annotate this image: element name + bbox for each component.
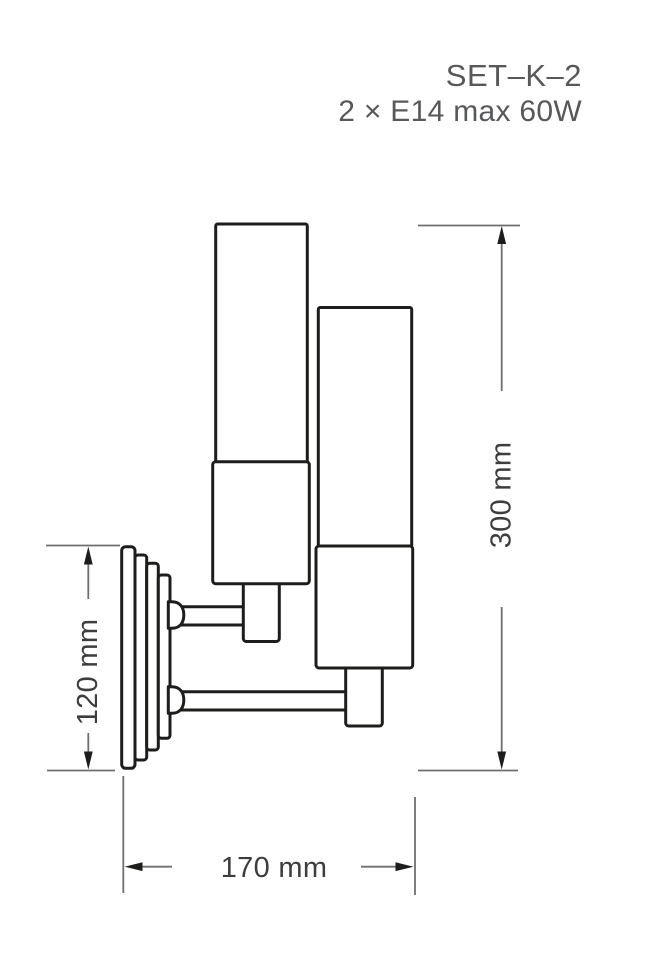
- dim-depth: 170 mm: [123, 776, 415, 895]
- plate-ring-2: [135, 555, 147, 760]
- ball-joint-lower: [168, 687, 184, 714]
- plate-ring-3: [147, 563, 159, 750]
- lamp-front: [213, 224, 310, 642]
- dim-backplate-arrow-bottom: [84, 752, 93, 770]
- dim-backplate-label: 120 mm: [72, 619, 104, 726]
- dim-depth-label: 170 mm: [221, 852, 328, 884]
- socket-housing-rear: [316, 546, 413, 668]
- dim-height: 300 mm: [418, 226, 520, 771]
- dim-height-label: 300 mm: [486, 442, 518, 549]
- glass-shade-front: [216, 224, 308, 464]
- lamp-rear: [316, 308, 413, 727]
- dim-backplate-arrow-top: [84, 547, 93, 565]
- wall-lamp-diagram: 300 mm 120 mm 170 mm: [0, 0, 663, 955]
- technical-drawing-page: SET–K–2 2 × E14 max 60W: [0, 0, 663, 955]
- candle-stem-rear: [346, 666, 383, 726]
- arm-upper: [180, 607, 250, 625]
- candle-stem-front: [243, 582, 279, 642]
- dim-depth-arrow-right: [396, 862, 414, 871]
- glass-shade-rear: [318, 308, 411, 548]
- arm-lower: [180, 692, 352, 710]
- socket-housing-front: [213, 462, 310, 584]
- plate-ring-1: [122, 547, 135, 769]
- dim-backplate: 120 mm: [46, 546, 120, 771]
- ball-joint-upper: [168, 602, 184, 629]
- dim-height-arrow-bottom: [497, 752, 506, 770]
- dim-height-arrow-top: [497, 226, 506, 244]
- dim-depth-arrow-left: [125, 862, 143, 871]
- wall-plate: [122, 547, 170, 769]
